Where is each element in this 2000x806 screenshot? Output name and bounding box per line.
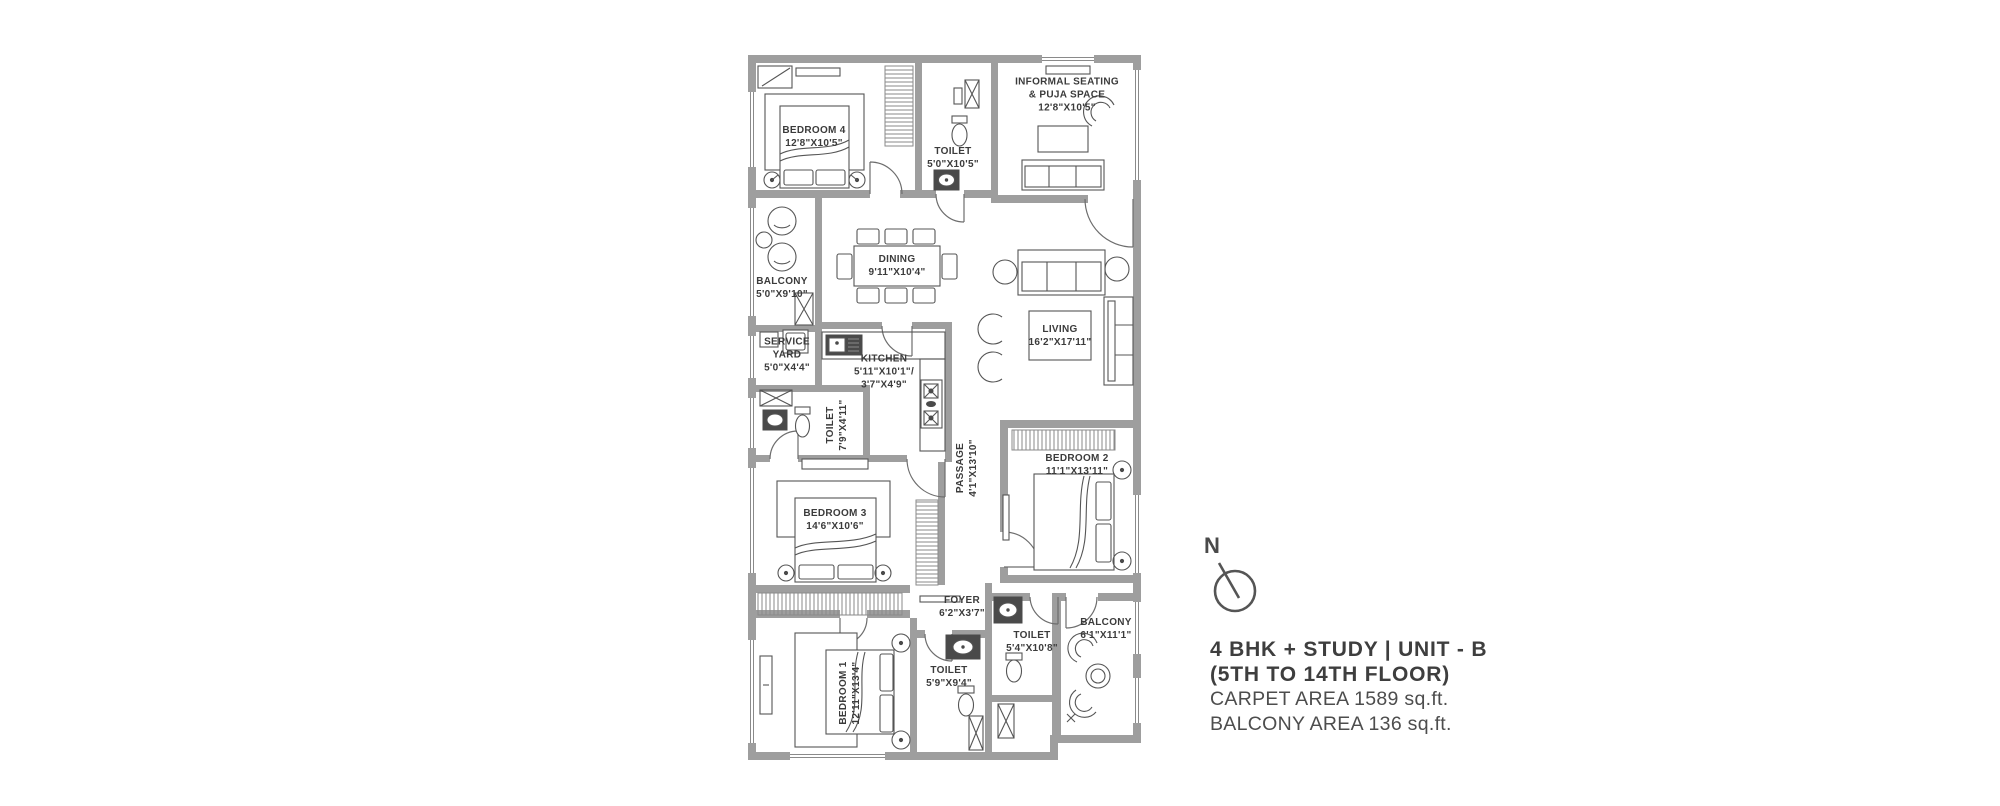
balcony-left-furniture [756, 207, 796, 271]
room-dims: 4'1"X13'10" [967, 439, 980, 497]
room-dims: 5'0"X10'5" [927, 158, 979, 171]
room-label-toilet-common: TOILET 7'9"X4'11" [824, 399, 850, 450]
floor-plan: BEDROOM 4 12'8"X10'5" TOILET 5'0"X10'5" … [740, 40, 1150, 770]
bedroom-1-furniture [760, 633, 910, 749]
room-dims: 5'9"X9'4" [926, 677, 972, 690]
room-label-toilet-2: TOILET 5'4"X10'8" [1006, 629, 1058, 655]
room-name: PASSAGE [954, 439, 967, 497]
room-dims: 5'4"X10'8" [1006, 642, 1058, 655]
room-name: BALCONY [756, 275, 808, 288]
room-label-dining: DINING 9'11"X10'4" [868, 253, 925, 279]
room-name: BALCONY [1080, 616, 1132, 629]
room-name: LIVING [1029, 323, 1092, 336]
room-dims: 7'9"X4'11" [837, 399, 850, 450]
room-dims: 3'7"X4'9" [854, 379, 914, 392]
room-dims: 9'11"X10'4" [868, 266, 925, 279]
room-label-bedroom-1: BEDROOM 1 12'11"X13'4" [837, 661, 863, 724]
room-dims: 12'8"X10'5" [1015, 102, 1119, 115]
room-label-balcony-2: BALCONY 6'1"X11'1" [1080, 616, 1132, 642]
room-name: DINING [868, 253, 925, 266]
room-name: TOILET [926, 664, 972, 677]
room-name: INFORMAL SEATING [1015, 76, 1119, 89]
room-name: BEDROOM 3 [803, 507, 866, 520]
room-dims: 12'8"X10'5" [782, 137, 845, 150]
room-label-bedroom-2: BEDROOM 2 11'1"X13'11" [1045, 452, 1108, 478]
room-dims: 6'2"X3'7" [939, 607, 985, 620]
room-name: SERVICE [764, 336, 810, 349]
balcony-area-text: BALCONY AREA 136 sq.ft. [1210, 712, 1487, 737]
room-label-living: LIVING 16'2"X17'11" [1029, 323, 1092, 349]
room-label-balcony-left: BALCONY 5'0"X9'10" [756, 275, 808, 301]
room-dims: 5'0"X9'10" [756, 288, 808, 301]
room-name: & PUJA SPACE [1015, 89, 1119, 102]
north-compass-icon: N [1202, 533, 1272, 623]
room-name: TOILET [1006, 629, 1058, 642]
room-dims: 16'2"X17'11" [1029, 336, 1092, 349]
room-label-bedroom-3: BEDROOM 3 14'6"X10'6" [803, 507, 866, 533]
room-dims: 6'1"X11'1" [1080, 629, 1132, 642]
room-label-informal-seating: INFORMAL SEATING & PUJA SPACE 12'8"X10'5… [1015, 76, 1119, 115]
room-name: FOYER [939, 594, 985, 607]
room-dims: 5'11"X10'1"/ [854, 366, 914, 379]
room-name: BEDROOM 1 [837, 661, 850, 724]
carpet-area-text: CARPET AREA 1589 sq.ft. [1210, 687, 1487, 712]
room-label-service-yard: SERVICE YARD 5'0"X4'4" [764, 336, 810, 375]
room-label-bedroom-4: BEDROOM 4 12'8"X10'5" [782, 124, 845, 150]
toilet-common-fixtures [760, 390, 810, 437]
room-name: YARD [764, 349, 810, 362]
room-label-toilet-top: TOILET 5'0"X10'5" [927, 145, 979, 171]
room-dims: 5'0"X4'4" [764, 362, 810, 375]
page-canvas: BEDROOM 4 12'8"X10'5" TOILET 5'0"X10'5" … [0, 0, 2000, 806]
room-label-passage: PASSAGE 4'1"X13'10" [954, 439, 980, 497]
room-name: TOILET [824, 399, 837, 450]
plan-title-line2: (5TH TO 14TH FLOOR) [1210, 662, 1487, 687]
room-dims: 14'6"X10'6" [803, 520, 866, 533]
legend: 4 BHK + STUDY | UNIT - B (5TH TO 14TH FL… [1210, 637, 1487, 737]
room-label-foyer: FOYER 6'2"X3'7" [939, 594, 985, 620]
north-label: N [1204, 533, 1220, 559]
room-name: KITCHEN [854, 353, 914, 366]
toilet-2-fixtures [994, 597, 1022, 738]
living-furniture [978, 250, 1133, 385]
room-label-toilet-1: TOILET 5'9"X9'4" [926, 664, 972, 690]
toilet-1-fixtures [946, 635, 983, 750]
room-dims: 12'11"X13'4" [850, 661, 863, 724]
plan-title-line1: 4 BHK + STUDY | UNIT - B [1210, 637, 1487, 662]
room-label-kitchen: KITCHEN 5'11"X10'1"/ 3'7"X4'9" [854, 353, 914, 392]
room-name: BEDROOM 2 [1045, 452, 1108, 465]
room-dims: 11'1"X13'11" [1045, 465, 1108, 478]
toilet-top-fixtures [934, 88, 967, 190]
room-name: TOILET [927, 145, 979, 158]
room-name: BEDROOM 4 [782, 124, 845, 137]
balcony-2-furniture [1067, 633, 1110, 722]
